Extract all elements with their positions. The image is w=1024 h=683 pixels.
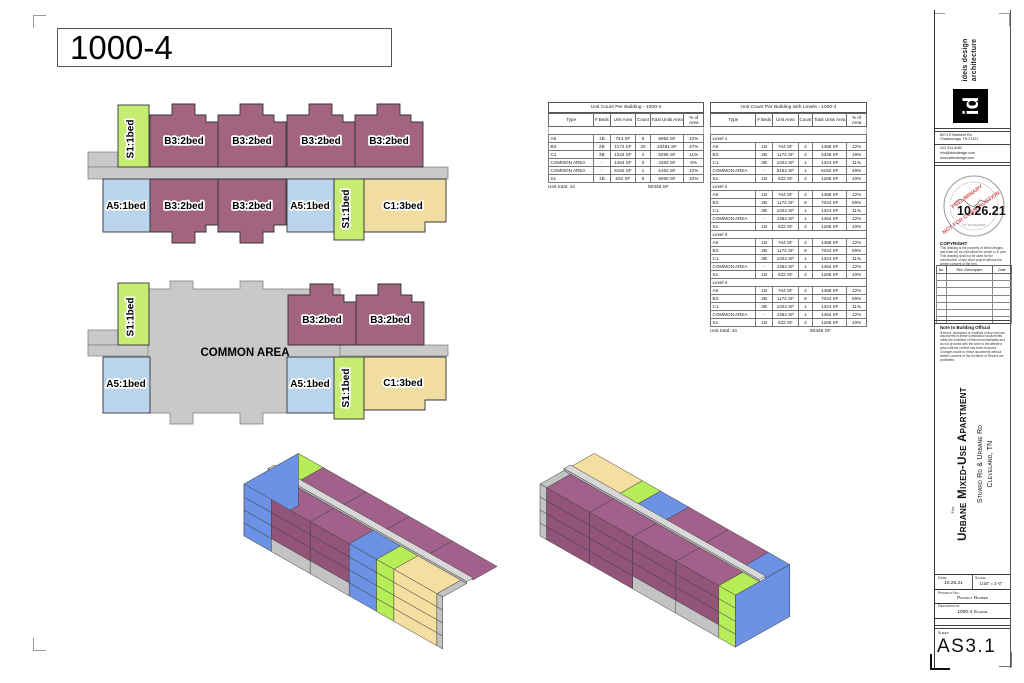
- axonometric-view-southwest: [222, 440, 507, 675]
- firm-address: 6074 E Brainerd Rd Chattanooga, TN 37421: [940, 133, 1009, 143]
- column-header: Unit Area: [772, 114, 798, 127]
- axonometric-view-northeast: [520, 438, 810, 673]
- table-row: COMMON AREA-1464 SF34393 SF9%: [549, 159, 704, 167]
- unit-label: B3:2bed: [232, 201, 271, 212]
- column-header: Count: [636, 114, 650, 127]
- table-row: COMMON AREA-1464 SF11464 SF12%: [711, 311, 867, 319]
- project-city: Cleveland, TN: [987, 441, 994, 488]
- description-value: 1000-4 Scheme: [936, 610, 1009, 615]
- unit-total: Unit total: 44: [548, 185, 575, 190]
- column-header: % of Area: [684, 114, 704, 127]
- common-area-label: COMMON AREA: [200, 347, 289, 359]
- revision-row: [937, 281, 1012, 288]
- unit-label: S1:1bed: [126, 298, 137, 337]
- table-row: S11B632 SF21265 SF10%: [711, 223, 867, 231]
- copyright-body: This drawing is the property of Ideis De…: [940, 247, 1008, 267]
- unit-label: S1:1bed: [126, 120, 137, 159]
- table-row: A51B744 SF21488 SF12%: [711, 143, 867, 151]
- firm-contact: 423.314.8182 info@ideisdesign.com www.id…: [940, 146, 1009, 160]
- unit-count-with-levels-table: Unit Count Per Building with Levels - 10…: [710, 102, 867, 335]
- unit-label: B3:2bed: [232, 136, 271, 147]
- project-no-value: Project Number: [936, 596, 1009, 601]
- revision-row: [937, 302, 1012, 309]
- unit-label: B3:2bed: [302, 315, 341, 326]
- firm-web: www.ideisdesign.com: [940, 156, 1009, 161]
- table-row: S11B632 SF21265 SF10%: [711, 271, 867, 279]
- unit-label: C1:3bed: [383, 378, 422, 389]
- table-row: S11B632 SF85060 SF10%: [549, 175, 704, 183]
- revision-row: [937, 295, 1012, 302]
- table-row: COMMON AREA-6162 SF16162 SF12%: [549, 167, 704, 175]
- sheet-number: AS3.1: [937, 636, 996, 658]
- column-header: Total Units Area: [813, 114, 847, 127]
- scale-value: 1/16" = 1'-0": [973, 581, 1009, 586]
- column-header: Total Units Area: [650, 114, 684, 127]
- column-header: Type: [711, 114, 756, 127]
- unit-label: C1:3bed: [383, 201, 422, 212]
- revision-table: No. Rev. Description Date: [936, 265, 1009, 324]
- column-header: Type: [549, 114, 594, 127]
- table-row: B32B1174 SF67044 SF56%: [711, 199, 867, 207]
- table-row: B32B1174 SF2023481 SF47%: [549, 143, 704, 151]
- table-row: A51B744 SF85954 SF12%: [549, 135, 704, 143]
- firm-logo: id: [960, 97, 983, 116]
- project-no-label: Project No.:: [938, 591, 960, 595]
- description-label: Description:: [938, 604, 960, 608]
- table-header-row: Type# BedsUnit AreaCountTotal Units Area…: [549, 114, 704, 127]
- table-footer: Unit total: 44 50346 SF: [710, 329, 867, 335]
- corner-mark-top-left: [33, 15, 46, 28]
- column-header: Count: [798, 114, 812, 127]
- unit-label: A5:1bed: [106, 379, 145, 390]
- column-header: # Beds: [594, 114, 610, 127]
- revision-row: [937, 274, 1012, 281]
- unit-label: S1:1bed: [341, 369, 352, 408]
- revision-header-row: No. Rev. Description Date: [937, 266, 1012, 274]
- title-block: ideis design architecture id 6074 E Brai…: [934, 0, 1012, 683]
- table-header-row: Type# BedsUnit AreaCountTotal Units Area…: [711, 114, 867, 127]
- firm-identity: ideis design architecture id: [934, 8, 1012, 128]
- column-header: % of Area: [847, 114, 867, 127]
- table-row: C13B1324 SF11324 SF11%: [711, 159, 867, 167]
- area-total: 50346 SF: [810, 329, 831, 334]
- corridor-stub: [88, 152, 118, 167]
- corner-mark-bottom-left: [33, 638, 46, 651]
- unit-label: B3:2bed: [370, 315, 409, 326]
- unit-label: A5:1bed: [290, 201, 329, 212]
- column-header: Unit Area: [610, 114, 636, 127]
- scheme-title-box: 1000-4: [57, 28, 392, 67]
- table-row: COMMON AREA-1464 SF11464 SF12%: [711, 215, 867, 223]
- level-heading-row: Level 1: [711, 135, 867, 143]
- unit-total: Unit total: 44: [710, 329, 737, 334]
- table-row: C13B1324 SF11324 SF11%: [711, 255, 867, 263]
- sheet-label: Sheet:: [938, 631, 949, 635]
- area-total: 50346 SF: [648, 185, 669, 190]
- unit-label: A5:1bed: [290, 379, 329, 390]
- stamp-date: 10.26.21: [957, 204, 1006, 218]
- project-identity: For Urbane Mixed-Use Apartment Stuard Rd…: [934, 358, 1012, 570]
- unit-count-per-building-table: Unit Count Per Building - 1000-4 Type# B…: [548, 102, 704, 191]
- building-official-note-heading: Note to Building Official: [940, 325, 990, 330]
- seal-state-text: OF TENNESSEE: [962, 223, 985, 227]
- floor-plan-level-1: COMMON AREA S1:1bed B3:2bed B3:2bed A5:1…: [85, 272, 450, 430]
- unit-label: A5:1bed: [106, 201, 145, 212]
- building-table: Type# BedsUnit AreaCountTotal Units Area…: [548, 113, 704, 183]
- table-row: A51B744 SF21488 SF12%: [711, 191, 867, 199]
- scale-label: Scale:: [975, 576, 986, 580]
- table-row: C13B1324 SF45296 SF11%: [549, 151, 704, 159]
- levels-table: Type# BedsUnit AreaCountTotal Units Area…: [710, 113, 867, 327]
- table-row: B32B1174 SF67044 SF56%: [711, 247, 867, 255]
- architect-stamp: OF TENNESSEE PRELIMINARY NOT FOR CONSTRU…: [934, 168, 1012, 240]
- unit-label: B3:2bed: [164, 201, 203, 212]
- project-for-label: For: [950, 506, 955, 514]
- level-heading-row: Level 3: [711, 231, 867, 239]
- drawing-sheet: 1000-4 S1:1bed B3:2bed B3:2bed B3:2bed B…: [0, 0, 1024, 683]
- column-header: # Beds: [756, 114, 773, 127]
- table-row: A51B744 SF21488 SF12%: [711, 239, 867, 247]
- scheme-title: 1000-4: [70, 29, 173, 66]
- table-row: B32B1174 SF67044 SF56%: [711, 295, 867, 303]
- unit-label: B3:2bed: [369, 136, 408, 147]
- table-row: S11B632 SF21265 SF10%: [711, 319, 867, 327]
- table-row: B32B1174 SF22348 SF19%: [711, 151, 867, 159]
- corridor-stub: [88, 330, 118, 345]
- floor-plan-typical-level: S1:1bed B3:2bed B3:2bed B3:2bed B3:2bed …: [85, 96, 450, 248]
- date-label: Date:: [938, 576, 947, 580]
- table-row: C13B1324 SF11324 SF11%: [711, 207, 867, 215]
- corridor: [88, 167, 448, 179]
- table-row: C13B1324 SF11324 SF11%: [711, 303, 867, 311]
- unit-label: B3:2bed: [164, 136, 203, 147]
- project-name: Urbane Mixed-Use Apartment: [957, 387, 969, 541]
- firm-name-line1: ideis design: [962, 39, 969, 82]
- level-heading-row: Level 4: [711, 279, 867, 287]
- table-row: S11B632 SF21265 SF10%: [711, 175, 867, 183]
- revision-row: [937, 288, 1012, 295]
- table-title: Unit Count Per Building - 1000-4: [548, 102, 704, 113]
- table-row: A51B744 SF21488 SF12%: [711, 287, 867, 295]
- table-footer: Unit total: 44 50346 SF: [548, 185, 704, 191]
- revision-row: [937, 309, 1012, 316]
- date-value: 10.26.21: [936, 581, 971, 586]
- firm-name-line2: architecture: [971, 39, 978, 81]
- unit-label: S1:1bed: [341, 190, 352, 229]
- table-row: COMMON AREA-6162 SF16162 SF49%: [711, 167, 867, 175]
- level-heading-row: Level 2: [711, 183, 867, 191]
- table-title: Unit Count Per Building with Levels - 10…: [710, 102, 867, 113]
- unit-label: B3:2bed: [301, 136, 340, 147]
- project-road: Stuard Rd & Urbane Rd: [977, 425, 984, 503]
- table-row: COMMON AREA-1464 SF11464 SF12%: [711, 263, 867, 271]
